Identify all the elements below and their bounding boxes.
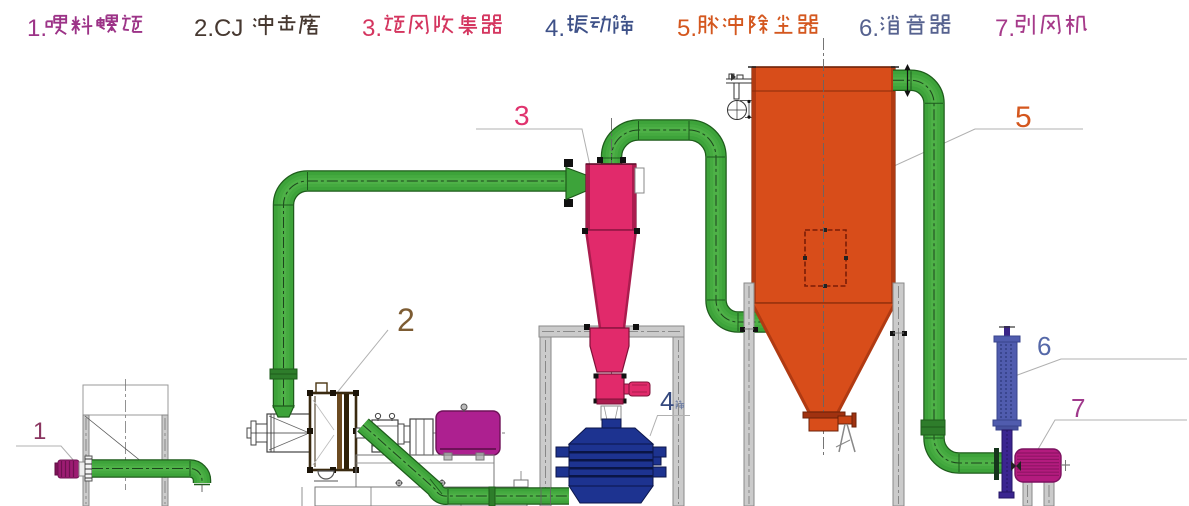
svg-text:3.: 3.: [362, 15, 382, 42]
svg-text:5: 5: [1015, 101, 1032, 134]
svg-text:6.: 6.: [859, 15, 879, 42]
svg-text:7: 7: [1071, 393, 1085, 423]
svg-text:2.CJ: 2.CJ: [194, 15, 243, 42]
svg-text:2: 2: [397, 302, 415, 338]
svg-text:6: 6: [1037, 331, 1051, 361]
svg-text:1.: 1.: [27, 15, 47, 42]
svg-text:1: 1: [33, 418, 46, 445]
svg-text:4.: 4.: [545, 15, 565, 42]
svg-text:7.: 7.: [995, 15, 1015, 42]
svg-text:4: 4: [660, 386, 674, 416]
svg-text:3: 3: [514, 100, 530, 131]
svg-text:5.: 5.: [677, 15, 697, 42]
